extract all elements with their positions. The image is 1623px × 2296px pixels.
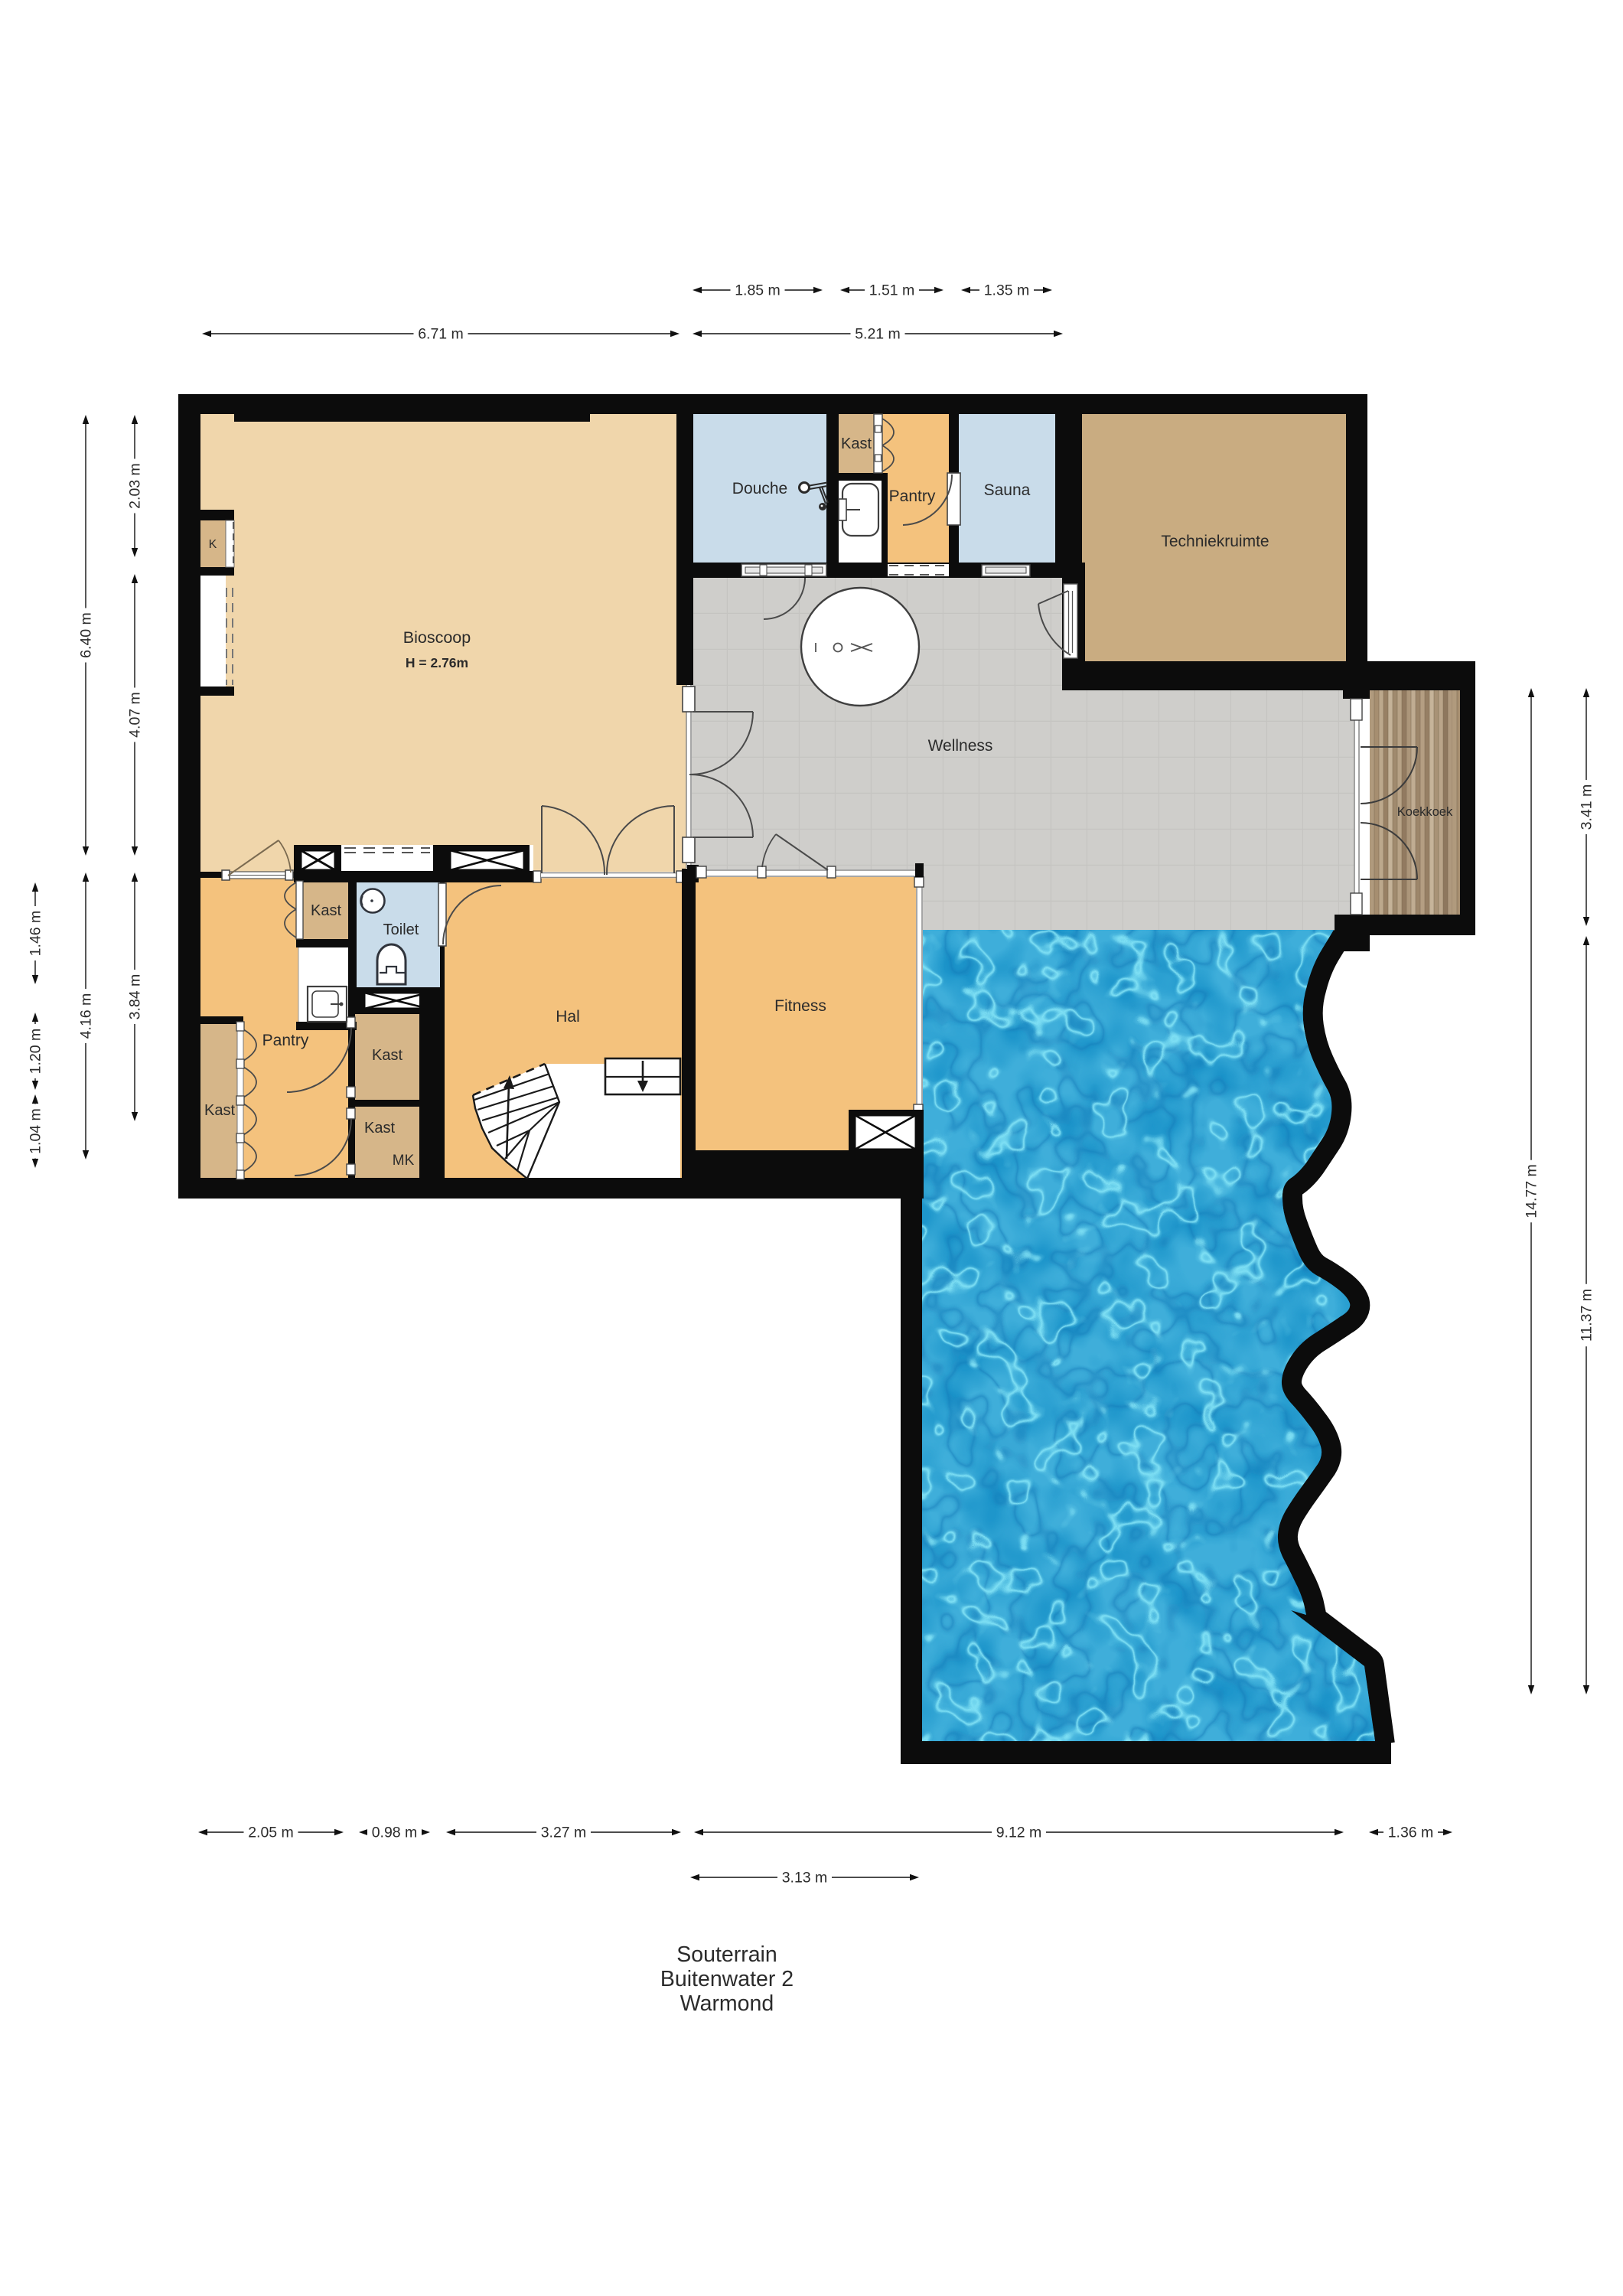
- svg-text:Toilet: Toilet: [383, 921, 419, 938]
- svg-text:1.51 m: 1.51 m: [869, 282, 915, 299]
- svg-text:3.84 m: 3.84 m: [127, 974, 144, 1020]
- svg-text:1.20 m: 1.20 m: [28, 1029, 44, 1075]
- svg-text:Souterrain: Souterrain: [676, 1942, 777, 1967]
- svg-text:Fitness: Fitness: [774, 997, 826, 1015]
- svg-text:Kast: Kast: [372, 1047, 402, 1064]
- svg-text:Techniekruimte: Techniekruimte: [1161, 533, 1269, 550]
- svg-text:Hal: Hal: [556, 1008, 580, 1026]
- svg-text:1.85 m: 1.85 m: [735, 282, 781, 299]
- svg-text:3.27 m: 3.27 m: [541, 1825, 587, 1841]
- svg-text:Kast: Kast: [204, 1102, 235, 1119]
- svg-text:Koekkoek: Koekkoek: [1397, 805, 1453, 819]
- svg-text:3.13 m: 3.13 m: [782, 1870, 828, 1887]
- svg-text:Wellness: Wellness: [928, 737, 993, 755]
- svg-text:4.07 m: 4.07 m: [127, 692, 144, 738]
- svg-text:6.71 m: 6.71 m: [418, 326, 464, 343]
- svg-text:Sauna: Sauna: [984, 481, 1031, 499]
- svg-text:2.05 m: 2.05 m: [248, 1825, 294, 1841]
- svg-text:Bioscoop: Bioscoop: [403, 628, 471, 647]
- svg-text:Buitenwater 2: Buitenwater 2: [660, 1967, 794, 1991]
- svg-text:Warmond: Warmond: [680, 1991, 774, 2016]
- svg-text:0.98 m: 0.98 m: [372, 1825, 418, 1841]
- svg-text:1.36 m: 1.36 m: [1388, 1825, 1434, 1841]
- svg-text:Kast: Kast: [841, 435, 872, 452]
- svg-text:3.41 m: 3.41 m: [1579, 784, 1595, 830]
- svg-text:Kast: Kast: [311, 902, 341, 919]
- svg-text:Pantry: Pantry: [889, 488, 936, 505]
- svg-text:9.12 m: 9.12 m: [996, 1825, 1042, 1841]
- svg-text:Douche: Douche: [732, 480, 787, 497]
- svg-text:H = 2.76m: H = 2.76m: [406, 655, 468, 670]
- svg-text:1.35 m: 1.35 m: [984, 282, 1030, 299]
- svg-text:Pantry: Pantry: [262, 1032, 309, 1049]
- svg-text:4.16 m: 4.16 m: [78, 993, 95, 1039]
- svg-text:6.40 m: 6.40 m: [78, 612, 95, 658]
- svg-text:2.03 m: 2.03 m: [127, 463, 144, 509]
- svg-text:Kast: Kast: [364, 1120, 395, 1137]
- svg-text:1.46 m: 1.46 m: [28, 911, 44, 957]
- svg-text:K: K: [209, 538, 217, 551]
- svg-text:11.37 m: 11.37 m: [1579, 1289, 1595, 1342]
- svg-text:5.21 m: 5.21 m: [855, 326, 901, 343]
- svg-text:MK: MK: [393, 1153, 415, 1169]
- svg-text:14.77 m: 14.77 m: [1524, 1164, 1540, 1218]
- svg-text:1.04 m: 1.04 m: [28, 1108, 44, 1154]
